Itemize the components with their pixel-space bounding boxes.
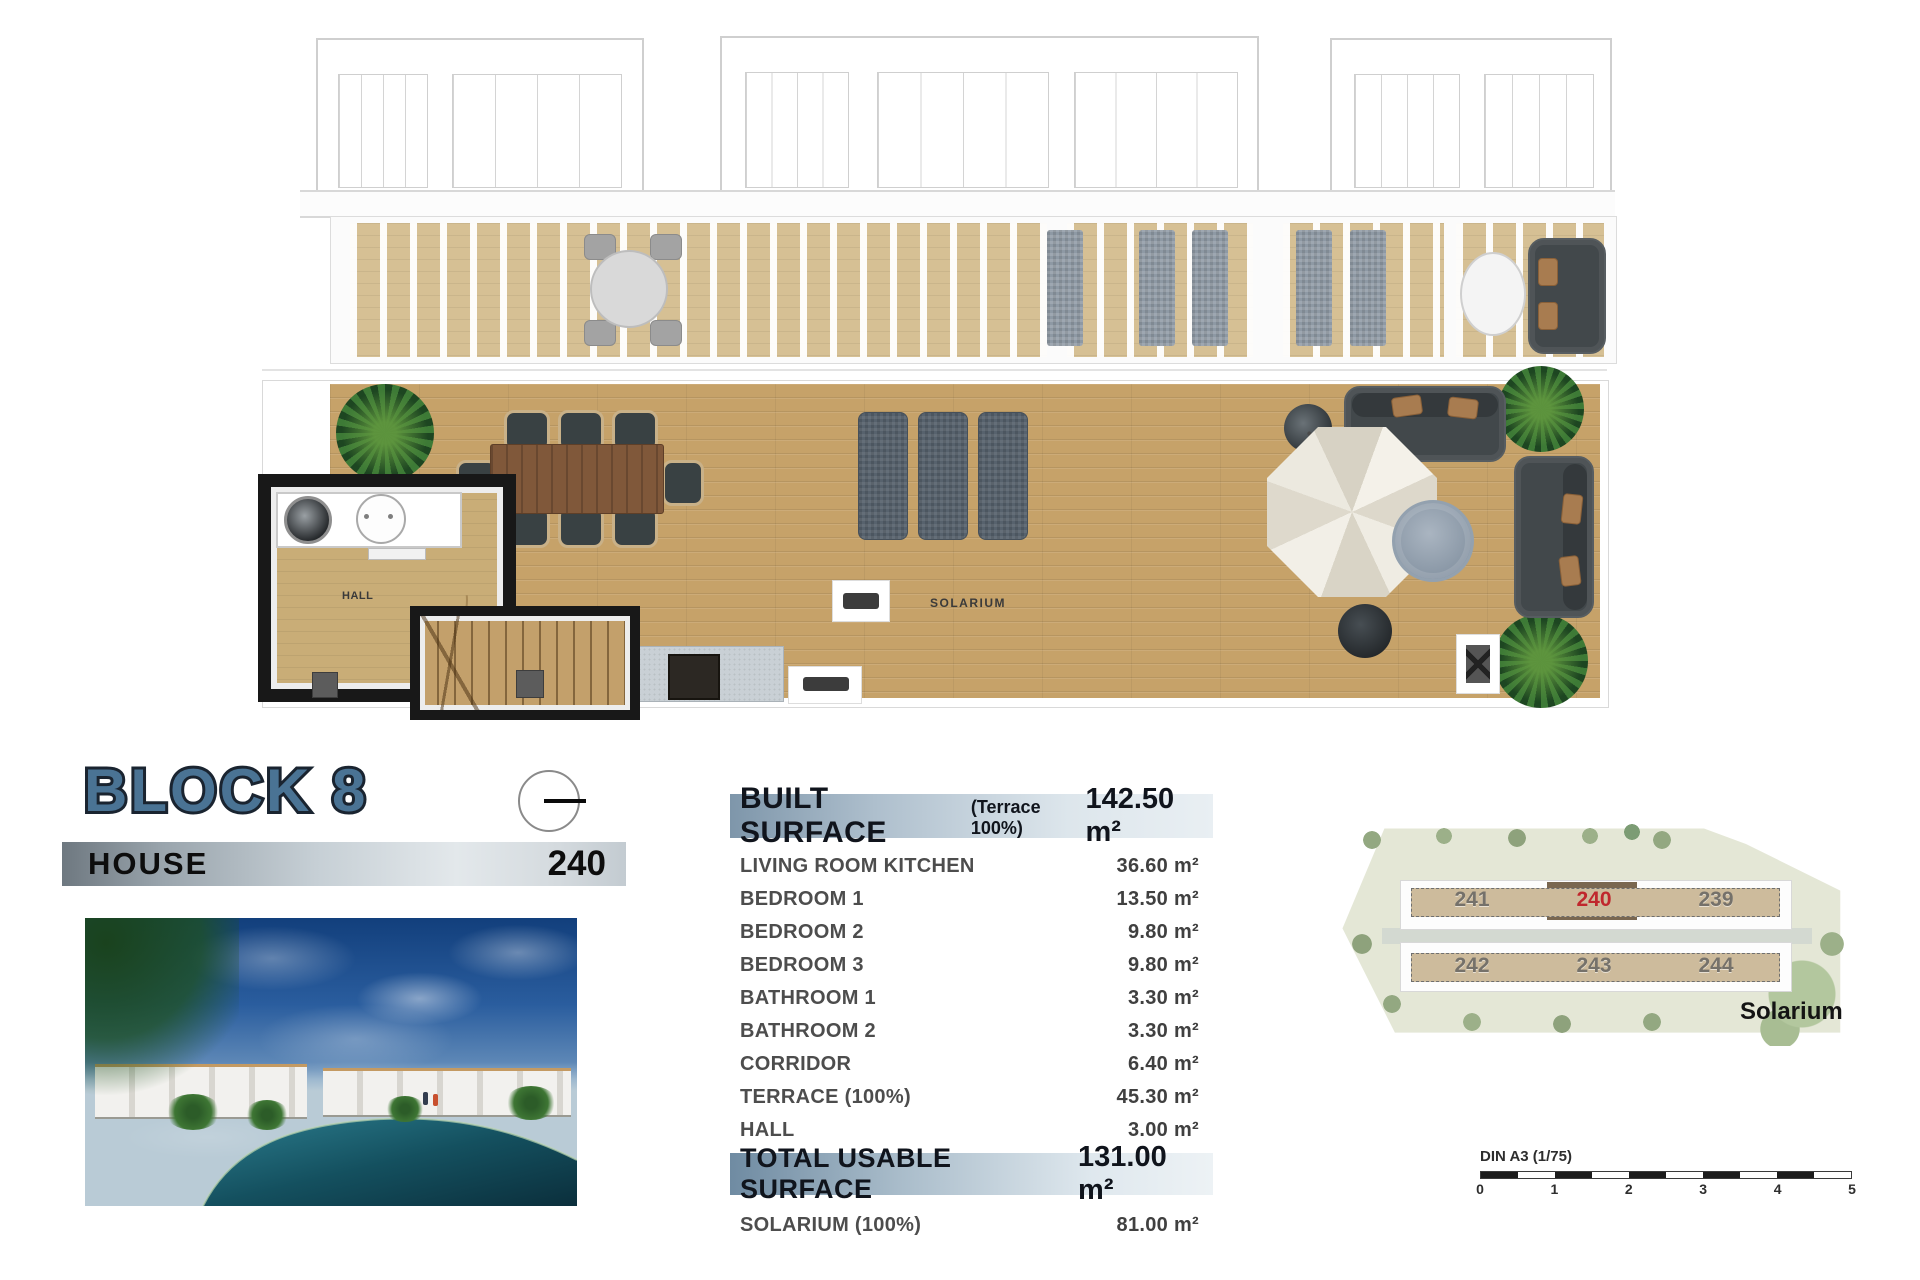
scale-segment [1481,1172,1518,1178]
unit-number: 239 [1686,888,1746,912]
table-row: BEDROOM 29.80 m² [730,916,1213,949]
floor-light [1466,645,1490,683]
potted-plant [336,384,434,482]
table-row: BEDROOM 39.80 m² [730,949,1213,982]
row-value: 45.30 m² [1117,1086,1199,1109]
scale-segment [1518,1172,1555,1178]
row-label: TERRACE (100%) [740,1086,911,1109]
page: SOLARIUM HALL BLOCK 8 HOUSE 240 [0,0,1920,1280]
dining-chair [662,460,704,506]
scale-strip [1480,1171,1852,1179]
row-value: 3.30 m² [1128,987,1199,1010]
scale-tick: 0 [1476,1181,1484,1197]
facade-wall [300,190,1615,218]
upper-terrace [330,216,1617,364]
sink-tap-dot [388,514,393,519]
row-value: 3.30 m² [1128,1020,1199,1043]
north-line [544,799,586,803]
bush [165,1094,221,1130]
bush [505,1086,557,1120]
table-row: SOLARIUM (100%) 81.00 m² [730,1209,1213,1242]
house-bar: HOUSE 240 [62,842,626,886]
pergola-panel [1484,74,1594,188]
sofa-pillow [1391,394,1423,418]
scale-tick: 5 [1848,1181,1856,1197]
wall-post [516,670,544,698]
person [423,1092,428,1105]
built-surface-value: 142.50 m² [1085,783,1213,849]
potted-plant [1498,366,1584,452]
sofa-pillow [1558,555,1582,587]
sun-lounger-towel [1296,230,1332,346]
sun-lounger-towel [1350,230,1386,346]
sun-lounger [978,412,1028,540]
table-row: LIVING ROOM KITCHEN36.60 m² [730,850,1213,883]
total-usable-title: TOTAL USABLE SURFACE [730,1143,1078,1205]
row-label: BATHROOM 1 [740,987,876,1010]
scale-segment [1777,1172,1814,1178]
pergola-frame [1330,38,1612,194]
row-label: LIVING ROOM KITCHEN [740,855,975,878]
potted-plant [1494,614,1588,708]
bush [385,1096,425,1122]
terrace-chair [650,234,682,260]
sofa-pillow [1538,302,1558,330]
solarium-label: SOLARIUM [930,596,1006,610]
sofa-pillow [1447,396,1479,420]
bbq-grill [668,654,720,700]
floor-vent [832,580,890,622]
vent-grille [803,677,849,691]
row-value: 9.80 m² [1128,921,1199,944]
scale-segment [1555,1172,1592,1178]
terrace-deck-segment [350,223,1047,357]
hall-label: HALL [342,590,373,602]
scale-tick: 2 [1625,1181,1633,1197]
table-row: BATHROOM 13.30 m² [730,982,1213,1015]
surface-rows: LIVING ROOM KITCHEN36.60 m² BEDROOM 113.… [730,850,1213,1147]
sun-lounger-towel [1139,230,1175,346]
sun-lounger [858,412,908,540]
sun-lounger [918,412,968,540]
scale-segment [1629,1172,1666,1178]
unit-number: 244 [1686,954,1746,978]
row-label: HALL [740,1119,795,1142]
terrace-round-table [590,250,668,328]
sun-lounger-towel [1192,230,1228,346]
row-label: BEDROOM 3 [740,954,864,977]
bush [245,1100,289,1130]
pergola-panel [338,74,428,188]
vent-grille [843,593,879,609]
sink [356,494,406,544]
built-surface-note: (Terrace 100%) [971,797,1086,839]
sun-lounger-towel [1047,230,1083,346]
scale-tick: 1 [1550,1181,1558,1197]
partition-wall [368,548,426,560]
scale-label: DIN A3 (1/75) [1480,1148,1852,1165]
floor-light-box [1456,634,1500,694]
built-surface-header: BUILT SURFACE (Terrace 100%) 142.50 m² [730,794,1213,838]
unit-number: 242 [1442,954,1502,978]
scale-bar: DIN A3 (1/75) 0 1 2 3 4 5 [1480,1148,1852,1199]
pouf [1338,604,1392,658]
row-value: 36.60 m² [1117,855,1199,878]
sofa-pillow [1538,258,1558,286]
row-value: 3.00 m² [1128,1119,1199,1142]
plan-divider-line [262,369,1607,371]
total-usable-value: 131.00 m² [1078,1141,1213,1207]
house-number: 240 [548,844,606,884]
staircase [410,606,640,720]
row-label: SOLARIUM (100%) [740,1214,921,1237]
scale-ticks: 0 1 2 3 4 5 [1480,1181,1852,1199]
sink-tap-dot [364,514,369,519]
scale-segment [1703,1172,1740,1178]
total-usable-bar: TOTAL USABLE SURFACE 131.00 m² [730,1153,1213,1195]
terrace-oval-table [1460,252,1526,336]
scale-segment [1814,1172,1851,1178]
site-plan-caption: Solarium [1740,998,1843,1026]
row-label: BEDROOM 2 [740,921,864,944]
floor-vent [788,666,862,704]
person [433,1094,438,1106]
row-label: CORRIDOR [740,1053,851,1076]
built-surface-title: BUILT SURFACE [730,782,961,850]
row-value: 9.80 m² [1128,954,1199,977]
north-indicator-icon [518,770,580,832]
table-row: BEDROOM 113.50 m² [730,883,1213,916]
pergola-panel [745,72,849,188]
sofa-pillow [1560,493,1583,525]
scale-segment [1666,1172,1703,1178]
table-row: TERRACE (100%)45.30 m² [730,1081,1213,1114]
pergola-panel [877,72,1049,188]
surface-table: BUILT SURFACE (Terrace 100%) 142.50 m² L… [730,794,1213,1242]
row-label: BATHROOM 2 [740,1020,876,1043]
table-row: CORRIDOR6.40 m² [730,1048,1213,1081]
scale-tick: 3 [1699,1181,1707,1197]
outdoor-sofa [1514,456,1594,618]
scale-segment [1740,1172,1777,1178]
pergola-frame [316,38,644,194]
pergola-frame [720,36,1259,194]
building-photo [85,918,577,1206]
unit-number-highlighted: 240 [1564,888,1624,912]
terrace-chair [650,320,682,346]
sofa-back [1563,464,1587,610]
pergola-panel [1354,74,1460,188]
row-value: 13.50 m² [1117,888,1199,911]
scale-segment [1592,1172,1629,1178]
block-title: BLOCK 8 [84,756,368,825]
pergola-panel [452,74,622,188]
terrace-sofa [1528,238,1606,354]
unit-number: 241 [1442,888,1502,912]
unit-number: 243 [1564,954,1624,978]
row-value: 6.40 m² [1128,1053,1199,1076]
pergola-panel [1074,72,1238,188]
row-label: BEDROOM 1 [740,888,864,911]
house-label: HOUSE [88,846,208,882]
scale-tick: 4 [1774,1181,1782,1197]
wall-post [312,672,338,698]
round-side-table [1392,500,1474,582]
table-row: BATHROOM 23.30 m² [730,1015,1213,1048]
row-value: 81.00 m² [1117,1214,1199,1237]
foreground-tree [85,918,239,1108]
dining-table [490,444,664,514]
stair-winder-treads [420,616,480,710]
washing-machine [284,496,332,544]
